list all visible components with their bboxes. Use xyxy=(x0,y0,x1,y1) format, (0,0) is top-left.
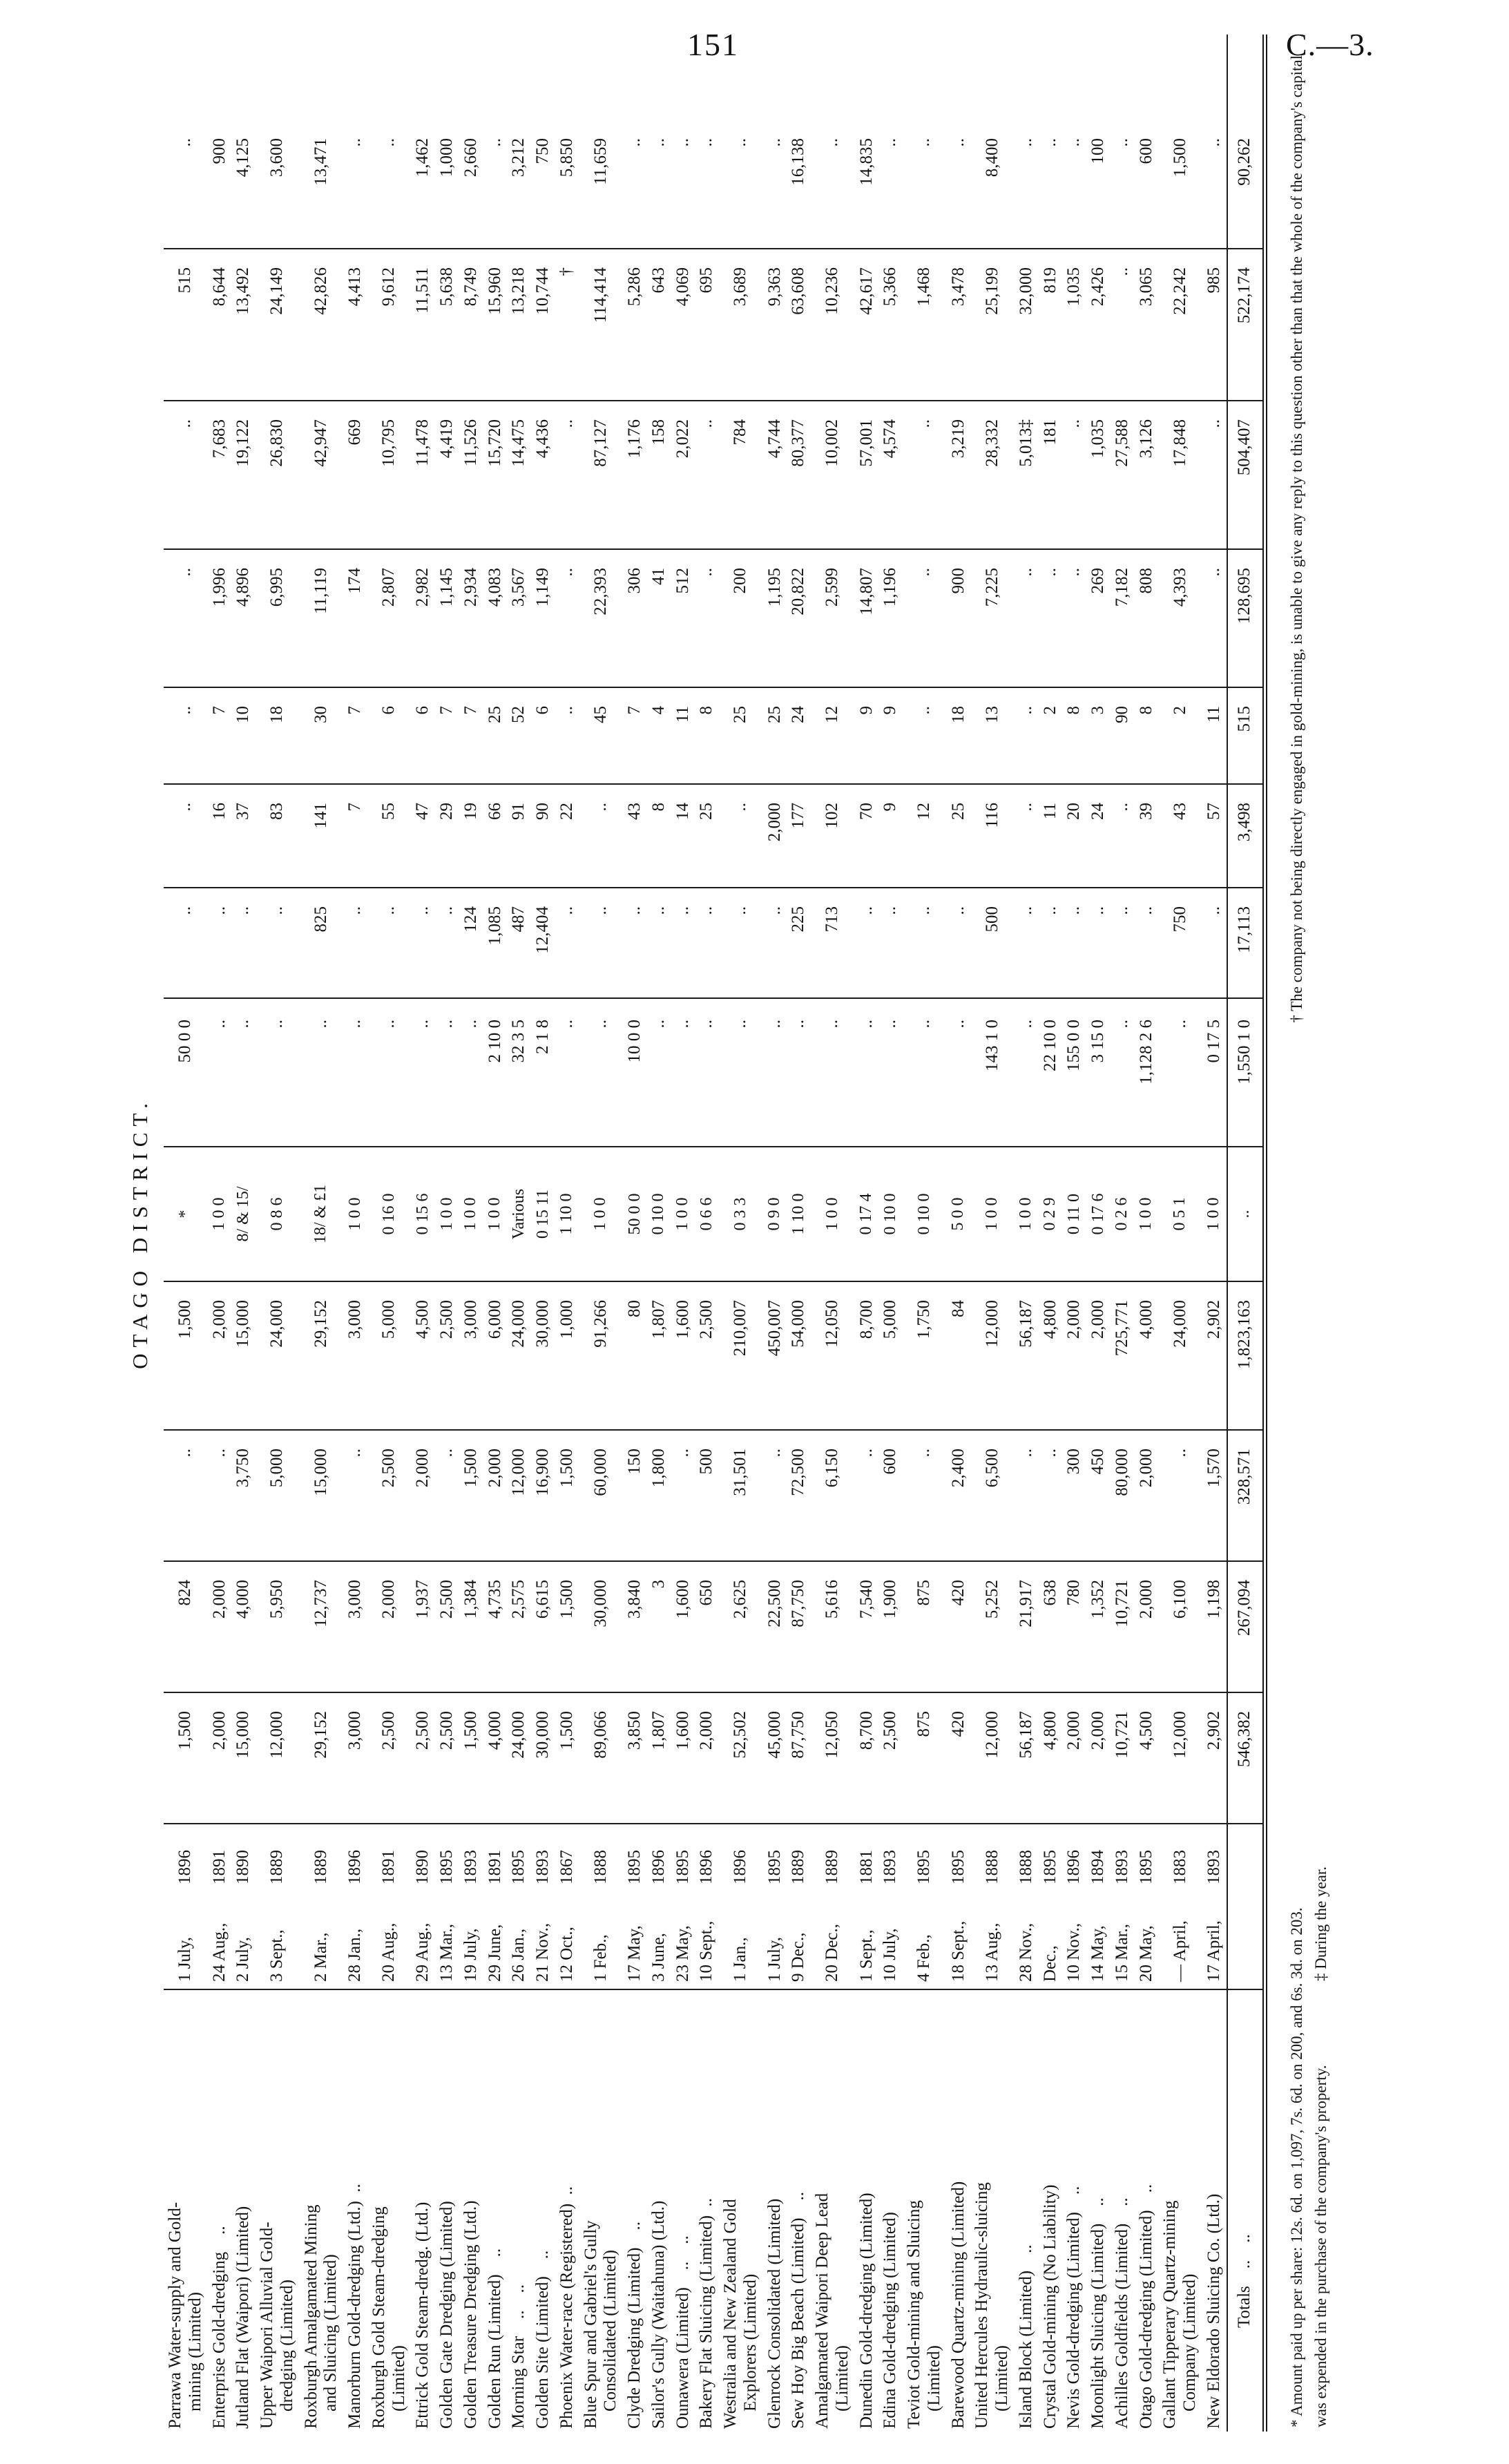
cell-col14: 14,475 xyxy=(507,401,531,549)
cell-col13: 11,119 xyxy=(300,549,344,687)
cell-col13: 41 xyxy=(647,549,671,687)
cell-col14: .. xyxy=(903,401,947,549)
cell-col14: 42,947 xyxy=(300,401,344,549)
cell-col16: 13,471 xyxy=(300,35,344,249)
cell-col6: .. xyxy=(1015,1430,1039,1561)
cell-col15: 8,749 xyxy=(459,249,483,401)
cell-col10: .. xyxy=(763,888,787,998)
cell-company-name: Nevis Gold-dredging (Limited) .. xyxy=(1062,1989,1086,2432)
cell-col4: 52,502 xyxy=(719,1692,763,1824)
cell-col15: 1,468 xyxy=(903,249,947,401)
cell-col15: 5,638 xyxy=(435,249,459,401)
table-row: Ounawera (Limited) .. ..23 May,18951,600… xyxy=(671,35,695,2432)
cell-col4: 29,152 xyxy=(300,1692,344,1824)
cell-col16: .. xyxy=(903,35,947,249)
cell-registration-date: 4 Feb., xyxy=(903,1886,947,1989)
cell-col12: 11 xyxy=(1202,687,1227,784)
cell-paid-per-share: 18/ & £1 xyxy=(300,1147,344,1281)
cell-col15: 515 xyxy=(164,249,208,401)
cell-col16: .. xyxy=(1039,35,1063,249)
cell-col13: 2,599 xyxy=(811,549,855,687)
cell-paid-per-share: 1 0 0 xyxy=(459,1147,483,1281)
cell-col16: .. xyxy=(719,35,763,249)
cell-col5: 1,384 xyxy=(459,1561,483,1692)
cell-paid-per-share: 0 17 6 xyxy=(1086,1147,1111,1281)
cell-col16: 3,212 xyxy=(507,35,531,249)
cell-col10: 124 xyxy=(459,888,483,998)
cell-col4: 87,750 xyxy=(787,1692,811,1824)
cell-col9-pounds-shillings-pence: .. xyxy=(647,998,671,1147)
cell-col13: .. xyxy=(1202,549,1227,687)
table-row: Phoenix Water-race (Registered) ..12 Oct… xyxy=(555,35,579,2432)
cell-col4: 30,000 xyxy=(531,1692,555,1824)
cell-col9-pounds-shillings-pence: .. xyxy=(231,998,256,1147)
cell-company-name: Phoenix Water-race (Registered) .. xyxy=(555,1989,579,2432)
cell-col15: 5,286 xyxy=(623,249,647,401)
cell-col7: 2,000 xyxy=(208,1281,232,1430)
cell-col6: 31,501 xyxy=(719,1430,763,1561)
cell-col9-pounds-shillings-pence: .. xyxy=(695,998,719,1147)
cell-col11: 2,000 xyxy=(763,784,787,888)
cell-col13: .. xyxy=(1015,549,1039,687)
cell-registration-date: 13 Mar., xyxy=(435,1886,459,1989)
cell-col5: 6,100 xyxy=(1158,1561,1202,1692)
cell-col14: 10,002 xyxy=(811,401,855,549)
cell-registration-year: 1895 xyxy=(623,1824,647,1886)
cell-col4: 1,600 xyxy=(671,1692,695,1824)
cell-col5: 2,000 xyxy=(1135,1561,1159,1692)
cell-col15: 24,149 xyxy=(256,249,300,401)
cell-col16: 5,850 xyxy=(555,35,579,249)
cell-col5: 824 xyxy=(164,1561,208,1692)
cell-col6: 72,500 xyxy=(787,1430,811,1561)
cell-col12: 2 xyxy=(1039,687,1063,784)
cell-col14: .. xyxy=(695,401,719,549)
cell-col6: 5,000 xyxy=(256,1430,300,1561)
cell-paid-per-share: 1 0 0 xyxy=(811,1147,855,1281)
cell-company-name: Jutland Flat (Waipori) (Limited) xyxy=(231,1989,256,2432)
cell-col15: 5,366 xyxy=(878,249,903,401)
cell-col7: 2,902 xyxy=(1202,1281,1227,1430)
cell-col13: 7,225 xyxy=(970,549,1015,687)
cell-col15: 114,414 xyxy=(579,249,624,401)
cell-registration-date: 15 Mar., xyxy=(1111,1886,1135,1989)
cell-col6: 3,750 xyxy=(231,1430,256,1561)
cell-col7: 12,050 xyxy=(811,1281,855,1430)
cell-col9-pounds-shillings-pence: .. xyxy=(343,998,367,1147)
cell-col12: 11 xyxy=(671,687,695,784)
cell-col6: 2,400 xyxy=(947,1430,971,1561)
cell-col7: 5,000 xyxy=(878,1281,903,1430)
cell-col5: 3,000 xyxy=(343,1561,367,1692)
cell-col14: .. xyxy=(164,401,208,549)
cell-col6: 600 xyxy=(878,1430,903,1561)
cell-paid-per-share: 0 15 6 xyxy=(411,1147,435,1281)
cell-company-name: Morning Star .. .. xyxy=(507,1989,531,2432)
cell-col10: .. xyxy=(1111,888,1135,998)
cell-col10: .. xyxy=(555,888,579,998)
cell-col9-pounds-shillings-pence: .. xyxy=(367,998,412,1147)
cell-col16: .. xyxy=(367,35,412,249)
cell-paid-per-share: .. xyxy=(1227,1147,1265,1281)
cell-col13: 3,567 xyxy=(507,549,531,687)
cell-col4: 45,000 xyxy=(763,1692,787,1824)
cell-col12: 8 xyxy=(1135,687,1159,784)
cell-col16: .. xyxy=(763,35,787,249)
cell-col16: 1,500 xyxy=(1158,35,1202,249)
cell-col16: .. xyxy=(623,35,647,249)
cell-company-name: Island Block (Limited) .. xyxy=(1015,1989,1039,2432)
cell-company-name: Ettrick Gold Steam-dredg. (Ltd.) xyxy=(411,1989,435,2432)
cell-registration-year: 1895 xyxy=(763,1824,787,1886)
cell-col9-pounds-shillings-pence: 143 1 0 xyxy=(970,998,1015,1147)
table-row: Bakery Flat Sluicing (Limited) ..10 Sept… xyxy=(695,35,719,2432)
cell-col6: 6,150 xyxy=(811,1430,855,1561)
footnote-capital-continuation: was expended in the purchase of the comp… xyxy=(1312,2065,1329,2427)
cell-registration-year: 1891 xyxy=(367,1824,412,1886)
cell-registration-date: 3 June, xyxy=(647,1886,671,1989)
cell-registration-date: 1 Feb., xyxy=(579,1886,624,1989)
cell-company-name: Edina Gold-dredging (Limited) xyxy=(878,1989,903,2432)
cell-col6: 2,000 xyxy=(411,1430,435,1561)
cell-col14: 669 xyxy=(343,401,367,549)
cell-col15: 985 xyxy=(1202,249,1227,401)
cell-col4: 2,000 xyxy=(208,1692,232,1824)
cell-col11: 57 xyxy=(1202,784,1227,888)
cell-col10: .. xyxy=(164,888,208,998)
cell-col15: 4,069 xyxy=(671,249,695,401)
cell-paid-per-share: 0 15 11 xyxy=(531,1147,555,1281)
cell-col15: 9,363 xyxy=(763,249,787,401)
cell-registration-date: 17 May, xyxy=(623,1886,647,1989)
cell-col14: 17,848 xyxy=(1158,401,1202,549)
cell-registration-date: 21 Nov., xyxy=(531,1886,555,1989)
cell-col15: 819 xyxy=(1039,249,1063,401)
cell-col7: 3,000 xyxy=(459,1281,483,1430)
cell-company-name: Golden Run (Limited) .. xyxy=(483,1989,508,2432)
cell-col12: .. xyxy=(903,687,947,784)
cell-col9-pounds-shillings-pence: .. xyxy=(208,998,232,1147)
cell-paid-per-share: Various xyxy=(507,1147,531,1281)
cell-col4: 12,000 xyxy=(1158,1692,1202,1824)
cell-col5: 4,735 xyxy=(483,1561,508,1692)
cell-col6: 2,000 xyxy=(1135,1430,1159,1561)
cell-registration-year: 1895 xyxy=(435,1824,459,1886)
cell-registration-date: 13 Aug., xyxy=(970,1886,1015,1989)
cell-col7: 3,000 xyxy=(343,1281,367,1430)
cell-col12: 30 xyxy=(300,687,344,784)
cell-col4: 12,000 xyxy=(970,1692,1015,1824)
cell-registration-year: 1896 xyxy=(1062,1824,1086,1886)
footnote-during-year: ‡ During the year. xyxy=(1312,1866,1329,1981)
cell-col15: 63,608 xyxy=(787,249,811,401)
cell-paid-per-share: 0 3 3 xyxy=(719,1147,763,1281)
table-row: Morning Star .. ..26 Jan.,189524,0002,57… xyxy=(507,35,531,2432)
cell-registration-date: 3 Sept., xyxy=(256,1886,300,1989)
cell-company-name: Moonlight Sluicing (Limited) .. xyxy=(1086,1989,1111,2432)
cell-col5: 1,600 xyxy=(671,1561,695,1692)
cell-registration-year: 1893 xyxy=(531,1824,555,1886)
cell-col4: 12,000 xyxy=(256,1692,300,1824)
cell-col13: 900 xyxy=(947,549,971,687)
cell-company-name: Crystal Gold-mining (No Liability) xyxy=(1039,1989,1063,2432)
cell-col16: .. xyxy=(947,35,971,249)
cell-col14: 19,122 xyxy=(231,401,256,549)
cell-col4: 2,500 xyxy=(367,1692,412,1824)
cell-col10: .. xyxy=(855,888,879,998)
cell-col10: .. xyxy=(208,888,232,998)
cell-col9-pounds-shillings-pence: .. xyxy=(300,998,344,1147)
cell-col9-pounds-shillings-pence: 32 3 5 xyxy=(507,998,531,1147)
cell-col13: .. xyxy=(164,549,208,687)
cell-col6: .. xyxy=(671,1430,695,1561)
cell-col6: 500 xyxy=(695,1430,719,1561)
cell-col14: 26,830 xyxy=(256,401,300,549)
cell-col4: 4,000 xyxy=(483,1692,508,1824)
cell-col4: 24,000 xyxy=(507,1692,531,1824)
cell-col15: 643 xyxy=(647,249,671,401)
table-row: Golden Run (Limited) ..29 June,18914,000… xyxy=(483,35,508,2432)
table-row: Nevis Gold-dredging (Limited) ..10 Nov.,… xyxy=(1062,35,1086,2432)
cell-col16: .. xyxy=(671,35,695,249)
cell-paid-per-share: 0 11 0 xyxy=(1062,1147,1086,1281)
cell-col14: 4,436 xyxy=(531,401,555,549)
cell-registration-date: 1 Jan., xyxy=(719,1886,763,1989)
cell-col5: 638 xyxy=(1039,1561,1063,1692)
table-row: Ettrick Gold Steam-dredg. (Ltd.)29 Aug.,… xyxy=(411,35,435,2432)
cell-col11: .. xyxy=(579,784,624,888)
cell-company-name: Parrawa Water-supply and Gold- mining (L… xyxy=(164,1989,208,2432)
cell-registration-date: 23 May, xyxy=(671,1886,695,1989)
totals-row: Totals .. ..546,382267,094328,5711,823,1… xyxy=(1227,35,1265,2432)
cell-col9-pounds-shillings-pence: .. xyxy=(459,998,483,1147)
cell-col13: 14,807 xyxy=(855,549,879,687)
cell-col15: 42,826 xyxy=(300,249,344,401)
cell-col6: .. xyxy=(1158,1430,1202,1561)
cell-company-name: Golden Treasure Dredging (Ltd.) xyxy=(459,1989,483,2432)
cell-col15: 15,960 xyxy=(483,249,508,401)
cell-registration-year: 1896 xyxy=(719,1824,763,1886)
cell-registration-date: 10 Sept., xyxy=(695,1886,719,1989)
cell-col4: 8,700 xyxy=(855,1692,879,1824)
cell-col16: 16,138 xyxy=(787,35,811,249)
cell-col12: 6 xyxy=(367,687,412,784)
cell-col15: 3,478 xyxy=(947,249,971,401)
cell-col13: .. xyxy=(555,549,579,687)
cell-col14: 504,407 xyxy=(1227,401,1265,549)
cell-col6: 15,000 xyxy=(300,1430,344,1561)
cell-col9-pounds-shillings-pence: .. xyxy=(947,998,971,1147)
cell-col5: 3,840 xyxy=(623,1561,647,1692)
cell-col15: 2,426 xyxy=(1086,249,1111,401)
cell-col12: 52 xyxy=(507,687,531,784)
cell-paid-per-share: 0 17 4 xyxy=(855,1147,879,1281)
cell-col11: 14 xyxy=(671,784,695,888)
cell-paid-per-share: 1 0 0 xyxy=(970,1147,1015,1281)
cell-col5: 1,198 xyxy=(1202,1561,1227,1692)
companies-tbody: Parrawa Water-supply and Gold- mining (L… xyxy=(164,35,1265,2432)
cell-col9-pounds-shillings-pence: .. xyxy=(763,998,787,1147)
cell-col14: 1,035 xyxy=(1086,401,1111,549)
table-row: New Eldorado Sluicing Co. (Ltd.)17 April… xyxy=(1202,35,1227,2432)
cell-col5: 3 xyxy=(647,1561,671,1692)
cell-col4: 15,000 xyxy=(231,1692,256,1824)
cell-registration-date: 28 Jan., xyxy=(343,1886,367,1989)
cell-col12: 90 xyxy=(1111,687,1135,784)
cell-col14: 5,013‡ xyxy=(1015,401,1039,549)
table-row: Moonlight Sluicing (Limited) ..14 May,18… xyxy=(1086,35,1111,2432)
cell-col7: 54,000 xyxy=(787,1281,811,1430)
cell-company-name: Gallant Tipperary Quartz-mining Company … xyxy=(1158,1989,1202,2432)
cell-col6: 60,000 xyxy=(579,1430,624,1561)
cell-paid-per-share: 0 5 1 xyxy=(1158,1147,1202,1281)
cell-col7: 6,000 xyxy=(483,1281,508,1430)
cell-col11: 19 xyxy=(459,784,483,888)
cell-col11: 25 xyxy=(695,784,719,888)
cell-col12: 8 xyxy=(1062,687,1086,784)
cell-col11: 43 xyxy=(623,784,647,888)
cell-col14: .. xyxy=(1062,401,1086,549)
cell-paid-per-share: 1 0 0 xyxy=(1015,1147,1039,1281)
cell-registration-date: 29 June, xyxy=(483,1886,508,1989)
cell-col16: 1,462 xyxy=(411,35,435,249)
cell-company-name: Sailor's Gully (Waitahuna) (Ltd.) xyxy=(647,1989,671,2432)
cell-paid-per-share: 1 0 0 xyxy=(435,1147,459,1281)
cell-col16: .. xyxy=(483,35,508,249)
cell-col12: 25 xyxy=(483,687,508,784)
cell-col15: 10,744 xyxy=(531,249,555,401)
cell-col6: 450 xyxy=(1086,1430,1111,1561)
cell-col15: 10,236 xyxy=(811,249,855,401)
cell-col7: 29,152 xyxy=(300,1281,344,1430)
cell-col9-pounds-shillings-pence: 2 10 0 xyxy=(483,998,508,1147)
table-row: Island Block (Limited) ..28 Nov.,188856,… xyxy=(1015,35,1039,2432)
table-row: Sew Hoy Big Beach (Limited) ..9 Dec.,188… xyxy=(787,35,811,2432)
table-row: Edina Gold-dredging (Limited)10 July,189… xyxy=(878,35,903,2432)
cell-col14: 1,176 xyxy=(623,401,647,549)
cell-paid-per-share: 50 0 0 xyxy=(623,1147,647,1281)
cell-registration-date: 20 Aug., xyxy=(367,1886,412,1989)
cell-col11: 11 xyxy=(1039,784,1063,888)
cell-col10: .. xyxy=(435,888,459,998)
cell-col5: 22,500 xyxy=(763,1561,787,1692)
cell-col13: 22,393 xyxy=(579,549,624,687)
cell-col5: 30,000 xyxy=(579,1561,624,1692)
cell-col12: .. xyxy=(1015,687,1039,784)
cell-col13: .. xyxy=(1062,549,1086,687)
cell-company-name: Blue Spur and Gabriel's Gully Consolidat… xyxy=(579,1989,624,2432)
cell-col10: .. xyxy=(1086,888,1111,998)
cell-col11: 29 xyxy=(435,784,459,888)
cell-paid-per-share: 0 9 0 xyxy=(763,1147,787,1281)
cell-col7: 2,500 xyxy=(435,1281,459,1430)
cell-col4: 56,187 xyxy=(1015,1692,1039,1824)
cell-col12: 18 xyxy=(256,687,300,784)
table-row: Dunedin Gold-dredging (Limited)1 Sept.,1… xyxy=(855,35,879,2432)
cell-col11: 37 xyxy=(231,784,256,888)
cell-col13: 4,896 xyxy=(231,549,256,687)
cell-col16: .. xyxy=(647,35,671,249)
cell-col14: 28,332 xyxy=(970,401,1015,549)
cell-col12: 3 xyxy=(1086,687,1111,784)
cell-col5: 12,737 xyxy=(300,1561,344,1692)
cell-col16: .. xyxy=(1062,35,1086,249)
table-row: Enterprise Gold-dredging ..24 Aug.,18912… xyxy=(208,35,232,2432)
footnote-line-1: * Amount paid up per share: 12s. 6d. on … xyxy=(1285,35,1309,2432)
cell-paid-per-share: 1 0 0 xyxy=(579,1147,624,1281)
cell-col15: 42,617 xyxy=(855,249,879,401)
cell-col11: 9 xyxy=(878,784,903,888)
cell-col5: 2,625 xyxy=(719,1561,763,1692)
cell-col16: 900 xyxy=(208,35,232,249)
cell-col13: 2,934 xyxy=(459,549,483,687)
cell-col4: 2,902 xyxy=(1202,1692,1227,1824)
cell-col4: 4,500 xyxy=(1135,1692,1159,1824)
cell-col10: .. xyxy=(1039,888,1063,998)
cell-col9-pounds-shillings-pence: 1,128 2 6 xyxy=(1135,998,1159,1147)
cell-col15: 22,242 xyxy=(1158,249,1202,401)
cell-company-name: Ounawera (Limited) .. .. xyxy=(671,1989,695,2432)
cell-col4: 2,000 xyxy=(695,1692,719,1824)
cell-col16: 90,262 xyxy=(1227,35,1265,249)
cell-paid-per-share: 0 10 0 xyxy=(647,1147,671,1281)
cell-col7: 2,500 xyxy=(695,1281,719,1430)
cell-col5: 2,575 xyxy=(507,1561,531,1692)
cell-col13: .. xyxy=(1039,549,1063,687)
table-row: Gallant Tipperary Quartz-mining Company … xyxy=(1158,35,1202,2432)
cell-col10: .. xyxy=(1202,888,1227,998)
table-row: Parrawa Water-supply and Gold- mining (L… xyxy=(164,35,208,2432)
cell-col15: 3,065 xyxy=(1135,249,1159,401)
cell-col10: 750 xyxy=(1158,888,1202,998)
cell-company-name: Roxburgh Amalgamated Mining and Sluicing… xyxy=(300,1989,344,2432)
footnote-amount-paid: * Amount paid up per share: 12s. 6d. on … xyxy=(1285,1907,1309,2427)
cell-col12: 10 xyxy=(231,687,256,784)
cell-col14: 57,001 xyxy=(855,401,879,549)
cell-col4: 1,500 xyxy=(164,1692,208,1824)
table-row: Westralia and New Zealand Gold Explorers… xyxy=(719,35,763,2432)
cell-col16: .. xyxy=(1111,35,1135,249)
cell-col15: 3,689 xyxy=(719,249,763,401)
cell-col4: 546,382 xyxy=(1227,1692,1265,1824)
cell-col14: 7,683 xyxy=(208,401,232,549)
cell-registration-date: 9 Dec., xyxy=(787,1886,811,1989)
cell-col16: 3,600 xyxy=(256,35,300,249)
cell-registration-date: 12 Oct., xyxy=(555,1886,579,1989)
cell-col4: 2,000 xyxy=(1086,1692,1111,1824)
cell-registration-date: Dec., xyxy=(1039,1886,1063,1989)
cell-company-name: Achilles Goldfields (Limited) .. xyxy=(1111,1989,1135,2432)
cell-registration-year: 1890 xyxy=(411,1824,435,1886)
footnote-line-2: was expended in the purchase of the comp… xyxy=(1309,35,1334,2432)
cell-col6: 328,571 xyxy=(1227,1430,1265,1561)
cell-company-name: Totals .. .. xyxy=(1227,1989,1265,2432)
rotated-table-sheet: OTAGO DISTRICT. Parrawa Water-supply and… xyxy=(128,35,1333,2432)
cell-col14: 784 xyxy=(719,401,763,549)
cell-registration-year: 1896 xyxy=(343,1824,367,1886)
cell-registration-date: 19 July, xyxy=(459,1886,483,1989)
cell-col13: 7,182 xyxy=(1111,549,1135,687)
cell-col7: 2,000 xyxy=(1086,1281,1111,1430)
cell-col7: 30,000 xyxy=(531,1281,555,1430)
cell-registration-year: 1895 xyxy=(1135,1824,1159,1886)
cell-col15: 695 xyxy=(695,249,719,401)
cell-col9-pounds-shillings-pence: 10 0 0 xyxy=(623,998,647,1147)
cell-col14: 3,219 xyxy=(947,401,971,549)
mining-companies-table: Parrawa Water-supply and Gold- mining (L… xyxy=(164,35,1267,2432)
cell-col10: .. xyxy=(623,888,647,998)
cell-col12: 13 xyxy=(970,687,1015,784)
